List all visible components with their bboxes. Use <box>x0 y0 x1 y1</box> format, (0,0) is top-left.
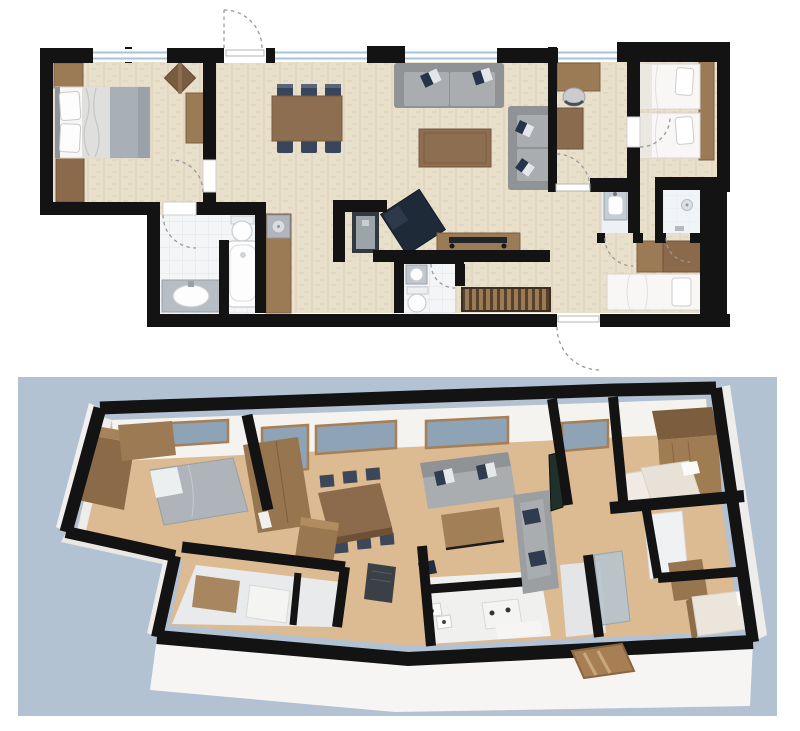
window-3d <box>316 421 396 454</box>
doormat-3d <box>572 644 634 678</box>
entrance-door-top <box>224 10 266 63</box>
wc-fixtures <box>406 265 428 312</box>
cabinet <box>556 108 583 149</box>
double-bed <box>55 87 150 158</box>
window-3d <box>426 417 508 448</box>
hall-doormat <box>462 288 550 311</box>
wardrobe-3d <box>118 421 176 461</box>
window <box>93 49 167 62</box>
entrance-door-bottom <box>557 314 600 370</box>
wardrobe <box>54 63 83 88</box>
bathtub <box>226 241 260 307</box>
fridge-cabinet <box>352 212 379 253</box>
twin-bedroom-furniture <box>640 52 714 160</box>
twin-bed <box>640 64 700 109</box>
window <box>405 49 497 62</box>
floorplan-2d <box>0 0 800 375</box>
toilet <box>232 221 252 241</box>
room-shower <box>663 185 700 233</box>
coffee-table <box>419 129 491 167</box>
headboard-cabinet <box>699 52 714 160</box>
dining-set <box>272 84 342 153</box>
single-bed <box>607 274 701 310</box>
window-3d <box>562 420 608 451</box>
desk <box>557 63 600 91</box>
floorplan-3d <box>0 375 800 731</box>
washroom-fixtures <box>604 191 627 220</box>
loveseat <box>508 106 550 190</box>
sink-counter <box>162 280 223 312</box>
kitchen-counter <box>266 214 291 313</box>
sofa <box>394 63 504 108</box>
window <box>558 49 617 62</box>
window <box>275 49 367 62</box>
